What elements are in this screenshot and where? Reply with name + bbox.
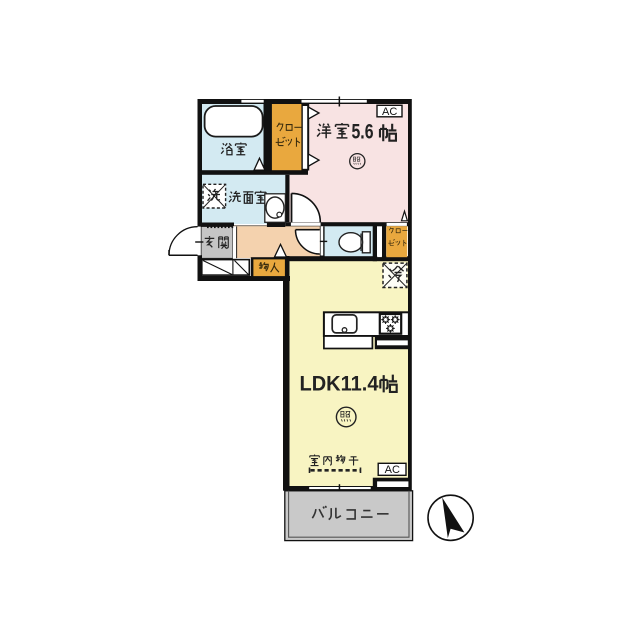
svg-text:AC: AC bbox=[382, 106, 397, 118]
svg-text:5.6: 5.6 bbox=[352, 120, 374, 143]
svg-text:LDK11.4: LDK11.4 bbox=[300, 371, 379, 395]
svg-text:AC: AC bbox=[385, 464, 400, 476]
